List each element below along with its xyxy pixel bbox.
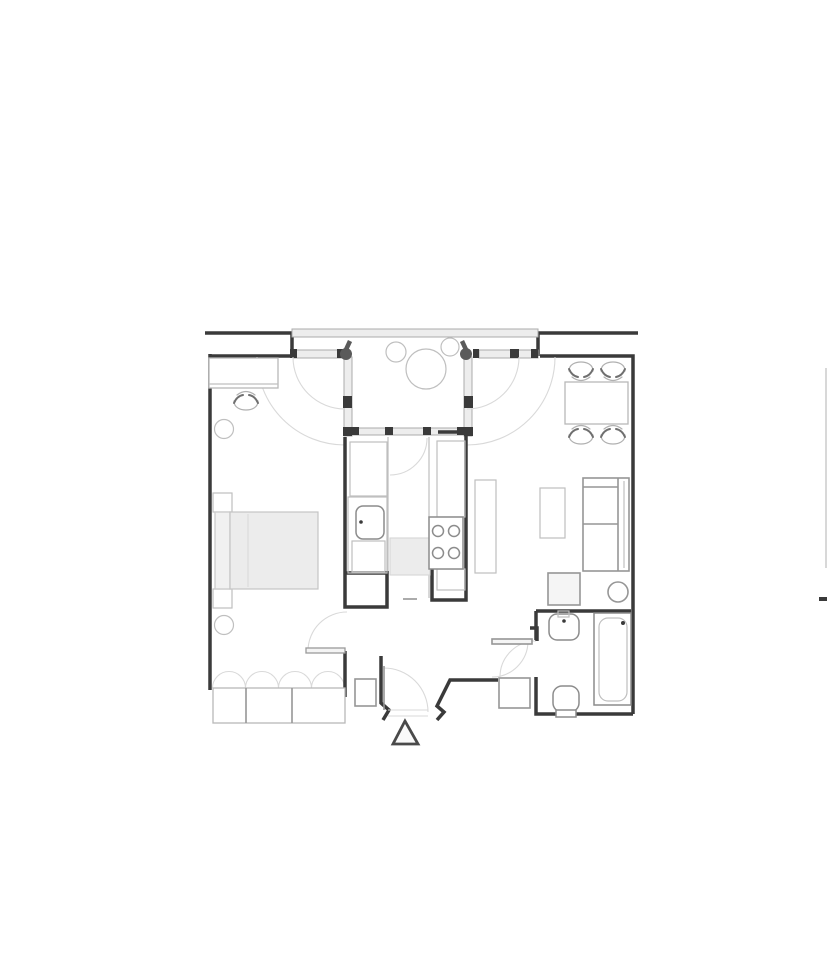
edge-fragment	[819, 368, 827, 601]
bathroom-kitchen-core	[348, 441, 465, 590]
chair-icon	[234, 392, 258, 411]
floor-plan	[0, 0, 828, 967]
chair-icon	[569, 426, 593, 445]
chair-icon	[569, 362, 593, 381]
balcony-glazing	[290, 329, 538, 436]
chair-icon	[601, 362, 625, 381]
entrance	[384, 666, 418, 744]
floor-plan-canvas	[0, 0, 828, 967]
thin-partitions	[388, 437, 532, 716]
chair-icon	[601, 426, 625, 445]
bathroom-fixtures	[355, 611, 631, 717]
balcony-furniture	[386, 338, 459, 389]
